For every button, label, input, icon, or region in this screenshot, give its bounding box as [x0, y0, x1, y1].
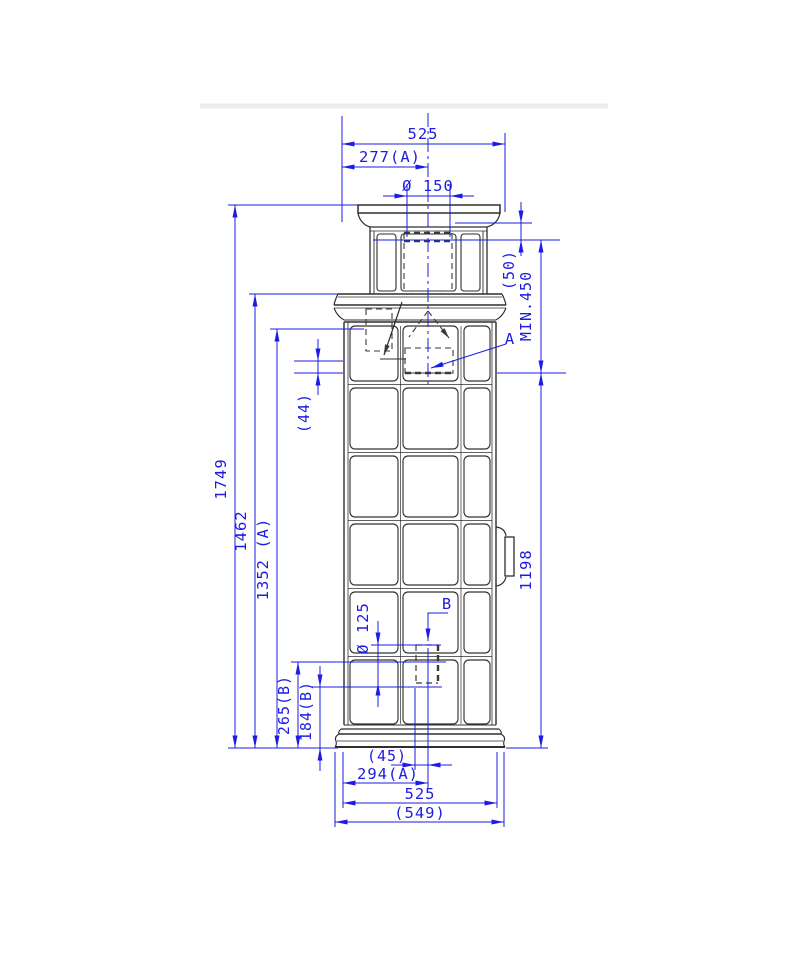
dim-label-flue-diameter: Ø 150: [402, 177, 454, 195]
dim-label-top-width-a: 277(A): [359, 148, 421, 166]
hidden-opening-a: [405, 348, 453, 373]
tile-grid: [350, 326, 490, 724]
dim-label-top-width: 525: [408, 125, 439, 143]
dim-label-side-flue-diameter: Ø 125: [354, 602, 372, 654]
dim-label-cap-offset: (50): [500, 250, 518, 290]
dim-label-rear-gap: (44): [295, 393, 313, 433]
dim-label-height-1462: 1462: [232, 510, 250, 551]
callout-label-b: B: [442, 595, 452, 613]
dim-label-offset-45: (45): [367, 747, 407, 765]
hidden-opening-b: [416, 645, 438, 683]
side-handle: [496, 527, 514, 586]
dim-label-height-1352: 1352 (A): [254, 518, 272, 601]
stove-cap: [358, 205, 500, 231]
dim-label-min-clearance: MIN.450: [517, 271, 535, 341]
internal-baffle-lines: [380, 302, 449, 359]
stove-cornice: [334, 294, 506, 322]
technical-drawing: 525 277(A) Ø 150 (50) MIN.450 A (44) 174…: [0, 0, 800, 960]
dim-label-bottom-width: 525: [405, 785, 436, 803]
drawing-sheet: 525 277(A) Ø 150 (50) MIN.450 A (44) 174…: [0, 0, 800, 960]
dim-label-bottom-width-a: 294(A): [357, 765, 419, 783]
callout-label-a: A: [505, 330, 515, 348]
dim-label-height-184b: 184(B): [297, 681, 315, 741]
dim-label-height-1198: 1198: [517, 549, 535, 590]
dim-label-height-265b: 265(B): [275, 675, 293, 735]
dim-label-overall-width: (549): [394, 804, 446, 822]
stove-base: [335, 725, 505, 747]
dim-label-total-height: 1749: [212, 458, 230, 499]
